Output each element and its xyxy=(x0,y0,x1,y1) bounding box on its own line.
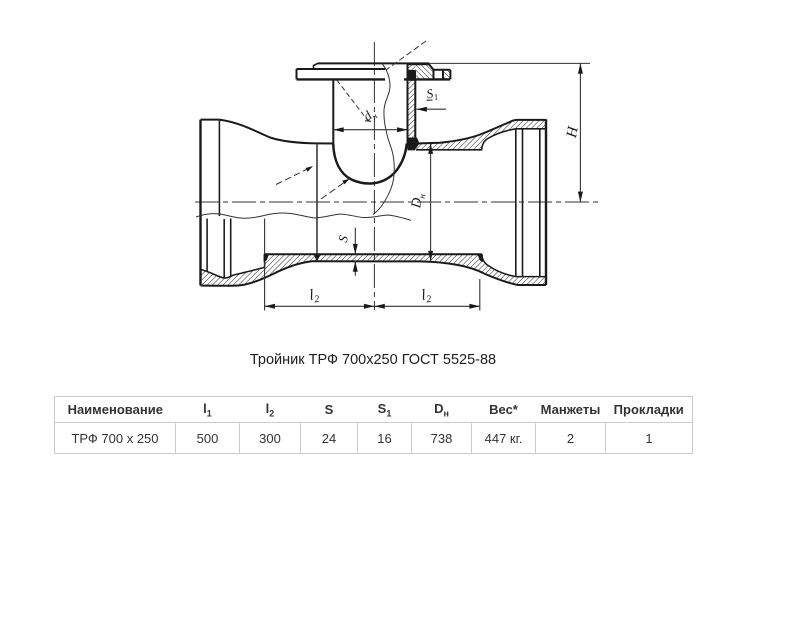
svg-text:Dн: Dн xyxy=(409,192,427,210)
svg-text:l2: l2 xyxy=(420,286,432,306)
svg-text:dн: dн xyxy=(360,105,379,125)
svg-text:S: S xyxy=(335,233,351,244)
svg-text:H: H xyxy=(564,124,582,140)
svg-text:l2: l2 xyxy=(308,286,320,306)
